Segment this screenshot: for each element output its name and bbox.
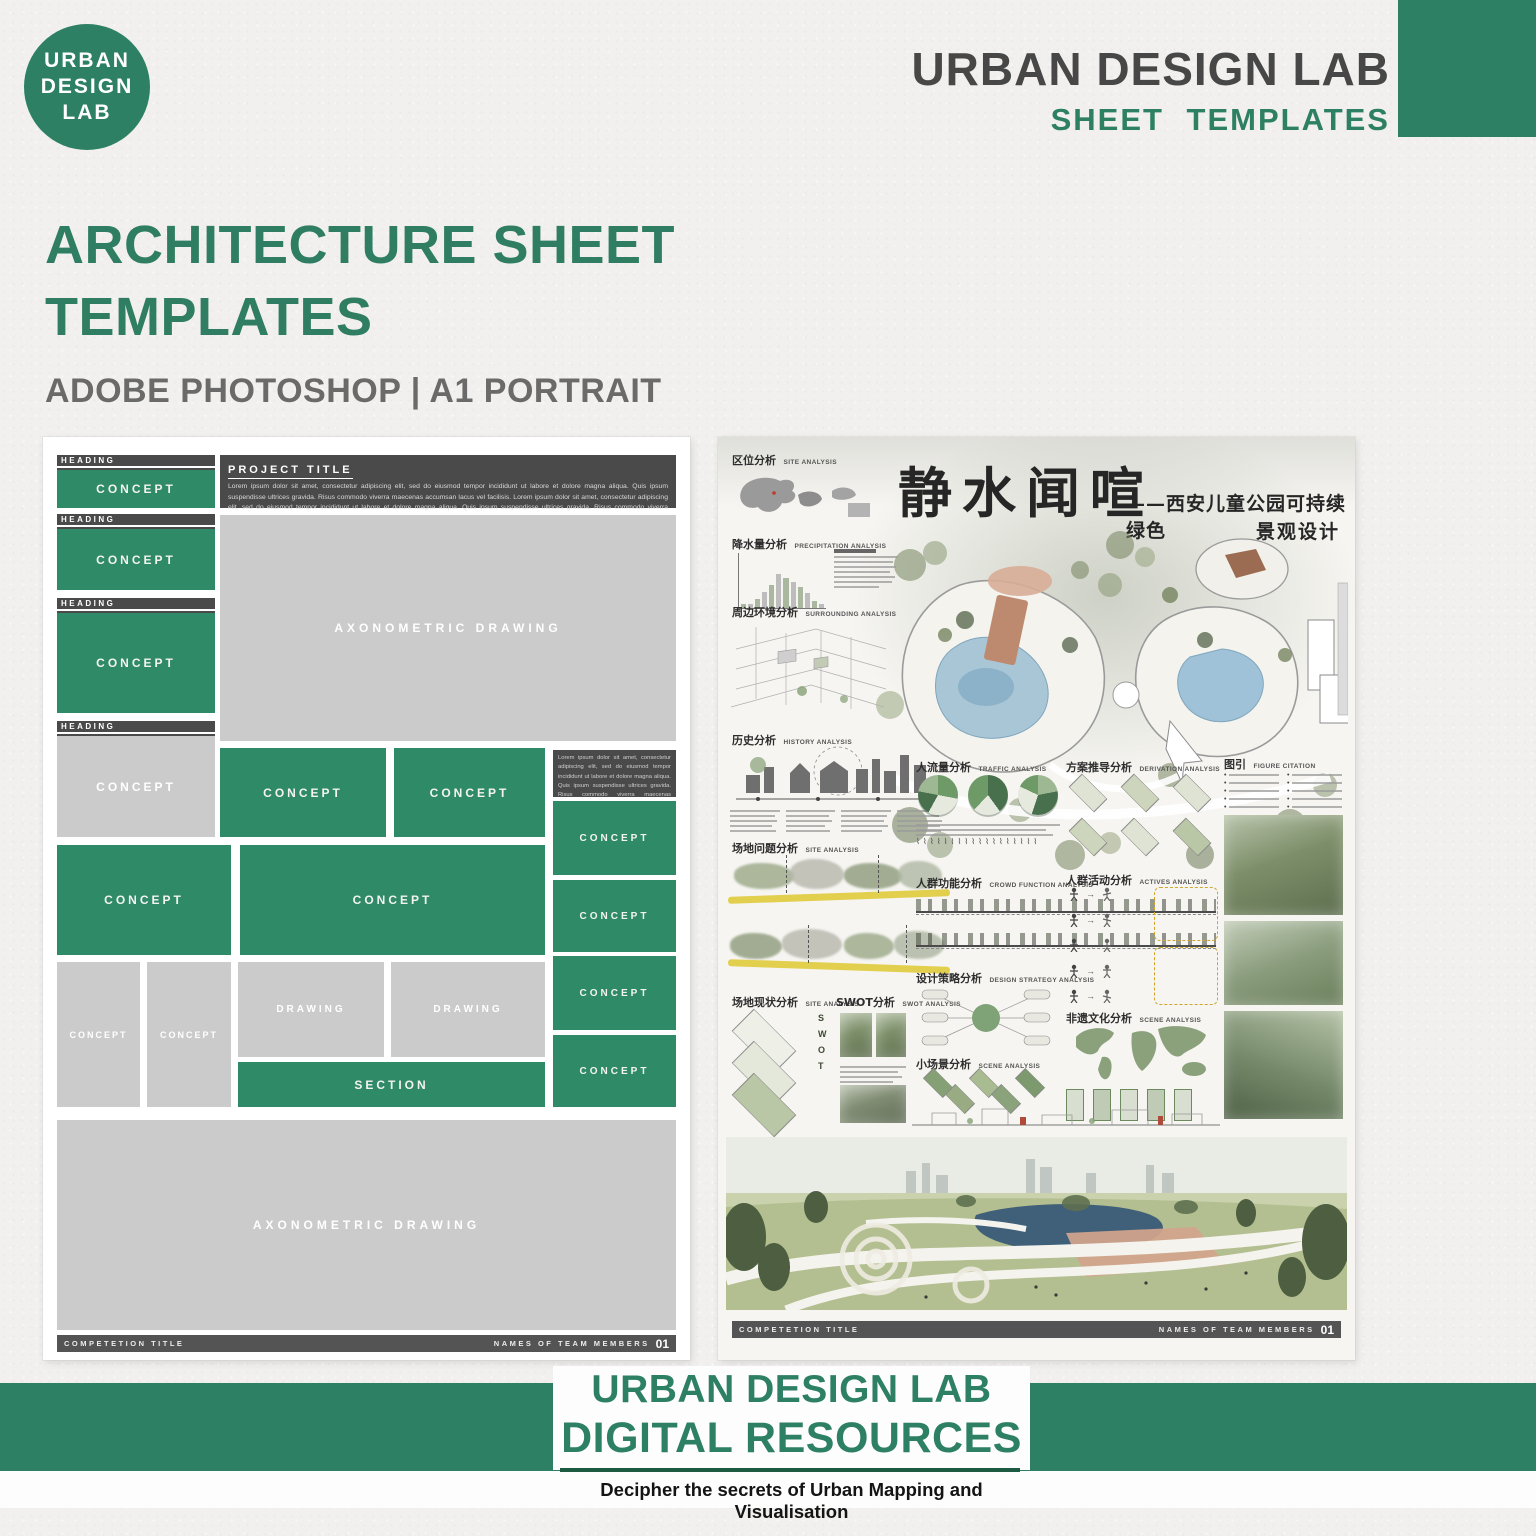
footer-banner-subtitle: DIGITAL RESOURCES (561, 1414, 1022, 1463)
china-location-maps (728, 469, 878, 527)
concept-block: CONCEPT (394, 748, 545, 837)
heading-bar: HEADING (57, 598, 215, 613)
side-note-block: Lorem ipsum dolor sit amet, consectetur … (553, 750, 676, 797)
concept-block-gray: CONCEPT (147, 962, 231, 1107)
activity-rows: → → → → → (1068, 887, 1148, 1003)
label-zh: 场地问题分析 (732, 842, 798, 855)
logo-line: DESIGN (41, 74, 134, 100)
traffic-pie-chart (918, 775, 958, 815)
heading-bar: HEADING (57, 721, 215, 736)
surrounding-axon-sketch (726, 619, 888, 727)
label-en: SURROUNDING ANALYSIS (805, 611, 896, 618)
site-section-strip (728, 925, 948, 975)
label-zh: 场地现状分析 (732, 996, 798, 1009)
team-members-label: NAMES OF TEAM MEMBERS (494, 1339, 650, 1348)
concept-block: CONCEPT (57, 470, 215, 508)
render-photo (1224, 1011, 1343, 1119)
label-zh: 人群活动分析 (1066, 874, 1132, 887)
swot-letters: S W O T (818, 1013, 836, 1071)
plan-small-pool (1178, 649, 1264, 722)
heading-bar: HEADING (57, 455, 215, 470)
history-collage (728, 745, 948, 803)
sheet-footer-bar: COMPETETION TITLE NAMES OF TEAM MEMBERS … (57, 1335, 676, 1352)
concept-block: CONCEPT (553, 801, 676, 875)
section-label-traffic: 人流量分析 TRAFFIC ANALYSIS (916, 758, 1047, 776)
long-elevation-sketch (912, 1101, 1220, 1129)
swot-photo (876, 1013, 906, 1057)
swot-photo (840, 1013, 872, 1057)
label-zh: 方案推导分析 (1066, 761, 1132, 774)
precipitation-note (834, 549, 898, 611)
template-sheet: HEADING CONCEPT HEADING CONCEPT HEADING … (43, 437, 690, 1360)
page-title-line1: ARCHITECTURE SHEET (45, 210, 675, 282)
scene-plate (1015, 1068, 1045, 1098)
concept-block: CONCEPT (553, 1035, 676, 1107)
section-block: SECTION (238, 1062, 545, 1107)
concept-block: CONCEPT (57, 529, 215, 590)
brand-title: URBAN DESIGN LAB (911, 42, 1390, 96)
concept-block: CONCEPT (240, 845, 545, 955)
footer-banner-tagline: Decipher the secrets of Urban Mapping an… (553, 1479, 1030, 1523)
competition-title-label: COMPETETION TITLE (64, 1339, 184, 1348)
world-map (1066, 1021, 1218, 1085)
project-title-block: PROJECT TITLE Lorem ipsum dolor sit amet… (220, 455, 676, 508)
section-label-derivation: 方案推导分析 DERIVATION ANALYSIS (1066, 758, 1220, 776)
example-sheet: 静水闻喧 ——西安儿童公园可持续绿色 景观设计 (718, 437, 1355, 1360)
activity-dashed-box (1154, 947, 1218, 1005)
urban-design-lab-logo: URBAN DESIGN LAB (24, 24, 150, 150)
drawing-block: DRAWING (238, 962, 384, 1057)
swot-stacked-plates (720, 1009, 812, 1125)
page-title-line2: TEMPLATES (45, 282, 675, 354)
brand-subtitle: SHEET TEMPLATES (1051, 102, 1390, 138)
concept-block-gray: CONCEPT (57, 962, 140, 1107)
label-en: DERIVATION ANALYSIS (1139, 766, 1220, 773)
footer-banner-rule (560, 1468, 1020, 1472)
team-members-label: NAMES OF TEAM MEMBERS (1159, 1325, 1315, 1334)
page-title: ARCHITECTURE SHEET TEMPLATES (45, 210, 675, 354)
project-title-label: PROJECT TITLE (228, 464, 353, 479)
strategy-bubble-diagram (916, 983, 1056, 1053)
poster-canvas: URBAN DESIGN LAB URBAN DESIGN LAB SHEET … (0, 0, 1536, 1536)
label-en: SITE ANALYSIS (783, 459, 836, 466)
competition-title-label: COMPETETION TITLE (739, 1325, 859, 1334)
page-number: 01 (1321, 1323, 1334, 1337)
label-zh: 人流量分析 (916, 761, 971, 774)
concept-block: CONCEPT (57, 613, 215, 713)
drawing-block: DRAWING (391, 962, 545, 1057)
label-zh: 周边环境分析 (732, 606, 798, 619)
label-zh: 区位分析 (732, 454, 776, 467)
page-subtitle: ADOBE PHOTOSHOP | A1 PORTRAIT (45, 372, 662, 411)
section-label-site-analysis: 区位分析 SITE ANALYSIS (732, 451, 837, 469)
crowd-figures-row: ⌇⌇⌇⌇⌇⌇⌇⌇⌇⌇⌇⌇⌇⌇⌇⌇⌇⌇ (916, 837, 1060, 849)
label-en: SITE ANALYSIS (805, 847, 858, 854)
concept-block: CONCEPT (57, 845, 231, 955)
logo-line: URBAN (44, 48, 130, 74)
render-photo (1224, 815, 1343, 915)
concept-block: CONCEPT (220, 748, 386, 837)
activity-dashed-box (1154, 887, 1218, 941)
label-en: SCENE ANALYSIS (978, 1063, 1040, 1070)
concept-block: CONCEPT (553, 880, 676, 952)
concept-block-gray: CONCEPT (57, 736, 215, 837)
page-number: 01 (656, 1337, 669, 1351)
label-en: TRAFFIC ANALYSIS (978, 766, 1046, 773)
history-timeline-notes (730, 807, 946, 835)
logo-line: LAB (62, 100, 111, 126)
perspective-render (726, 1137, 1347, 1310)
heading-bar: HEADING (57, 514, 215, 529)
concept-block: CONCEPT (553, 956, 676, 1030)
label-zh: 降水量分析 (732, 538, 787, 551)
label-en: ACTIVES ANALYSIS (1139, 879, 1207, 886)
figure-citation-list: • • • • • • • • • • (1224, 771, 1342, 811)
footer-banner-title: URBAN DESIGN LAB (591, 1368, 991, 1412)
corner-accent-square (1398, 0, 1536, 137)
traffic-pie-chart (968, 775, 1008, 815)
poster-title-calligraphy: 静水闻喧 (898, 449, 1154, 528)
swot-photo (840, 1085, 906, 1123)
swot-notes (840, 1063, 906, 1086)
label-zh: 图引 (1224, 758, 1246, 771)
label-en: FIGURE CITATION (1253, 763, 1315, 770)
axonometric-drawing-area: AXONOMETRIC DRAWING (57, 1120, 676, 1330)
site-section-strip (728, 855, 948, 905)
axonometric-drawing-area: AXONOMETRIC DRAWING (220, 515, 676, 741)
precipitation-bars (738, 553, 826, 609)
footer-banner-box: URBAN DESIGN LAB DIGITAL RESOURCES (553, 1366, 1030, 1470)
render-photo (1224, 921, 1343, 1005)
traffic-pie-chart (1018, 775, 1058, 815)
label-zh: 小场景分析 (916, 1058, 971, 1071)
sheet-footer-bar: COMPETETION TITLE NAMES OF TEAM MEMBERS … (732, 1321, 1341, 1338)
label-zh: SWOT分析 (836, 996, 895, 1009)
